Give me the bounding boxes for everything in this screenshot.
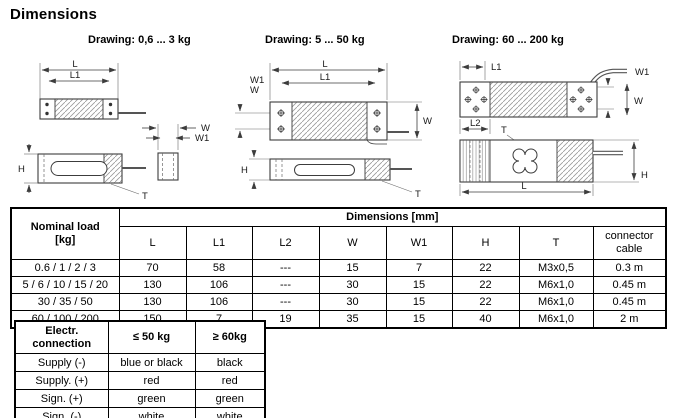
- top-view: [40, 99, 146, 119]
- dim-label-H: H: [18, 164, 25, 175]
- col-header-H: H: [452, 227, 519, 260]
- nominal-load-header: Nominal load [kg]: [11, 208, 119, 260]
- drawing-label-60-200kg: Drawing: 60 ... 200 kg: [452, 34, 564, 46]
- cell-load: 30 / 35 / 50: [11, 294, 119, 311]
- electr-connection-header: Electr. connection: [15, 321, 108, 354]
- dim-label-L2: L2: [470, 118, 481, 129]
- cell-connection-label: Sign. (+): [15, 390, 108, 408]
- cell-ge60: green: [195, 390, 265, 408]
- cell-le50: green: [108, 390, 195, 408]
- dim-label-W: W: [423, 116, 432, 127]
- cell-cable: 0.45 m: [593, 294, 666, 311]
- table-row: Supply (-) blue or black black: [15, 354, 265, 372]
- col-header-W: W: [319, 227, 386, 260]
- cell-L2: ---: [252, 277, 319, 294]
- drawing-label-5-50kg: Drawing: 5 ... 50 kg: [265, 34, 365, 46]
- col-header-L2: L2: [252, 227, 319, 260]
- dim-label-L: L: [72, 59, 77, 70]
- electr-header-line2: connection: [17, 338, 107, 351]
- dim-label-T: T: [142, 191, 148, 202]
- cell-W: 30: [319, 294, 386, 311]
- cell-L: 130: [119, 277, 186, 294]
- nominal-load-line1: Nominal load: [13, 221, 118, 234]
- cell-T: M3x0,5: [519, 260, 593, 277]
- cell-connection-label: Supply (-): [15, 354, 108, 372]
- cell-connection-label: Sign. (-): [15, 408, 108, 418]
- side-view: [460, 140, 623, 182]
- cell-L: 70: [119, 260, 186, 277]
- table-row: 5 / 6 / 10 / 15 / 20 130 106 --- 30 15 2…: [11, 277, 666, 294]
- drawing-figure-5-50kg: L L1 W1 W W: [232, 52, 444, 202]
- table-row: Supply. (+) red red: [15, 372, 265, 390]
- dim-label-L: L: [521, 181, 526, 192]
- dim-label-H: H: [241, 165, 248, 176]
- col-header-L: L: [119, 227, 186, 260]
- drawing-figure-0.6-3kg: L L1 W W1: [15, 52, 235, 202]
- cell-ge60: black: [195, 354, 265, 372]
- cell-ge60: white: [195, 408, 265, 418]
- cell-le50: white: [108, 408, 195, 418]
- cell-H: 22: [452, 260, 519, 277]
- table-row: Sign. (+) green green: [15, 390, 265, 408]
- cell-H: 22: [452, 294, 519, 311]
- dim-label-L1: L1: [491, 62, 502, 73]
- cell-T: M6x1,0: [519, 294, 593, 311]
- dim-label-L1: L1: [320, 72, 331, 83]
- cell-L1: 106: [186, 277, 252, 294]
- connector-line1: connector: [595, 230, 665, 243]
- table-row: 0.6 / 1 / 2 / 3 70 58 --- 15 7 22 M3x0,5…: [11, 260, 666, 277]
- cell-W1: 15: [386, 294, 452, 311]
- cell-L1: 58: [186, 260, 252, 277]
- cell-L1: 106: [186, 294, 252, 311]
- page-title: Dimensions: [10, 6, 97, 23]
- electrical-connection-table: Electr. connection ≤ 50 kg ≥ 60kg Supply…: [14, 320, 266, 418]
- cell-L: 130: [119, 294, 186, 311]
- cell-L2: ---: [252, 294, 319, 311]
- nominal-load-line2: [kg]: [13, 234, 118, 247]
- cell-L2: ---: [252, 260, 319, 277]
- drawing-figure-60-200kg: L1 W1 W L2: [443, 52, 677, 202]
- cell-W1: 15: [386, 311, 452, 329]
- dim-label-L: L: [322, 59, 327, 70]
- top-view: [460, 82, 597, 117]
- connector-line2: cable: [595, 243, 665, 256]
- dimensions-span-header: Dimensions [mm]: [119, 208, 666, 227]
- dim-label-T: T: [415, 189, 421, 200]
- col-header-W1: W1: [386, 227, 452, 260]
- drawing-label-0.6-3kg: Drawing: 0,6 ... 3 kg: [88, 34, 191, 46]
- top-view: [270, 102, 409, 144]
- cell-H: 40: [452, 311, 519, 329]
- dimensions-table: Nominal load [kg] Dimensions [mm] L L1 L…: [10, 207, 667, 329]
- side-view: [38, 154, 146, 183]
- dim-label-W1: W1: [195, 133, 209, 144]
- cell-W: 30: [319, 277, 386, 294]
- electr-header-line1: Electr.: [17, 325, 107, 338]
- col-header-le50kg: ≤ 50 kg: [108, 321, 195, 354]
- table-row: 30 / 35 / 50 130 106 --- 30 15 22 M6x1,0…: [11, 294, 666, 311]
- cell-cable: 2 m: [593, 311, 666, 329]
- col-header-ge60kg: ≥ 60kg: [195, 321, 265, 354]
- end-view: [158, 153, 178, 180]
- cell-ge60: red: [195, 372, 265, 390]
- cell-le50: red: [108, 372, 195, 390]
- cell-W: 35: [319, 311, 386, 329]
- cell-cable: 0.45 m: [593, 277, 666, 294]
- dim-label-H: H: [641, 170, 648, 181]
- col-header-T: T: [519, 227, 593, 260]
- cell-T: M6x1,0: [519, 277, 593, 294]
- col-header-L1: L1: [186, 227, 252, 260]
- cell-cable: 0.3 m: [593, 260, 666, 277]
- dim-label-W1: W1: [635, 67, 649, 78]
- cell-W1: 15: [386, 277, 452, 294]
- cell-W: 15: [319, 260, 386, 277]
- cell-connection-label: Supply. (+): [15, 372, 108, 390]
- dim-label-L1: L1: [70, 70, 81, 81]
- cell-load: 5 / 6 / 10 / 15 / 20: [11, 277, 119, 294]
- col-header-connector-cable: connector cable: [593, 227, 666, 260]
- side-view: [270, 159, 412, 180]
- datasheet-page: Dimensions Drawing: 0,6 ... 3 kg Drawing…: [0, 0, 677, 418]
- table-row: Sign. (-) white white: [15, 408, 265, 418]
- cell-H: 22: [452, 277, 519, 294]
- cell-le50: blue or black: [108, 354, 195, 372]
- cell-T: M6x1,0: [519, 311, 593, 329]
- dim-label-T: T: [501, 125, 507, 136]
- cell-load: 0.6 / 1 / 2 / 3: [11, 260, 119, 277]
- cell-W1: 7: [386, 260, 452, 277]
- dim-label-W: W: [250, 85, 259, 96]
- dim-label-W: W: [634, 96, 643, 107]
